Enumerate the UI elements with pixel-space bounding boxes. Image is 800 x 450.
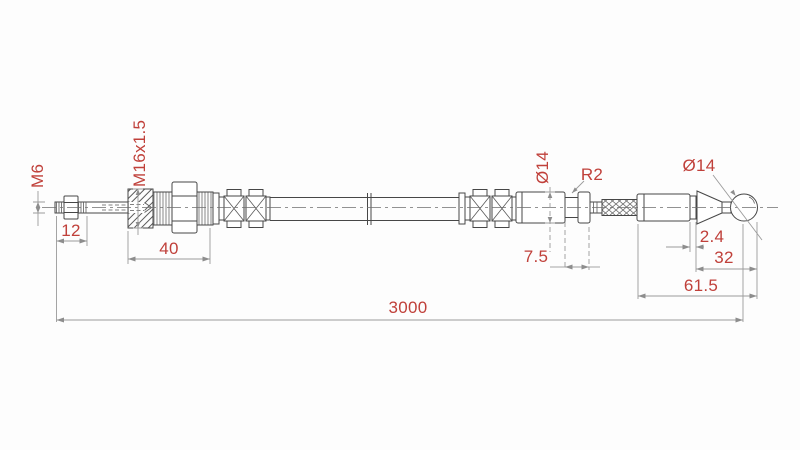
label-40: 40 [159, 239, 179, 258]
part-geometry [42, 182, 778, 233]
outer-conduit [270, 198, 460, 221]
label-m16x1-5: M16x1.5 [130, 120, 149, 187]
crimp-sleeve-left [213, 190, 270, 228]
label-dia14-left: Ø14 [533, 151, 552, 184]
thread-barrel-right [197, 192, 213, 225]
label-61-5: 61.5 [684, 276, 718, 295]
label-32: 32 [714, 248, 734, 267]
label-dia14-right: Ø14 [682, 156, 715, 175]
dimension-r2: R2 [572, 165, 603, 193]
technical-drawing-canvas: M6 12 M16x1.5 40 [0, 0, 800, 450]
dimension-m6: M6 [28, 164, 47, 226]
label-2-4: 2.4 [700, 227, 725, 246]
dimension-12: 12 [57, 216, 88, 322]
dimension-7-5: 7.5 [524, 222, 600, 270]
label-12: 12 [61, 221, 81, 240]
dimension-61-5: 61.5 [638, 224, 757, 299]
cable-technical-drawing: M6 12 M16x1.5 40 [0, 0, 800, 450]
label-3000: 3000 [388, 298, 427, 317]
dimension-40: 40 [128, 228, 210, 264]
crimp-sleeve-right [459, 190, 516, 228]
label-7-5: 7.5 [524, 247, 549, 266]
thread-barrel-left [153, 192, 172, 225]
label-r2: R2 [581, 165, 603, 184]
label-m6: M6 [28, 164, 47, 188]
